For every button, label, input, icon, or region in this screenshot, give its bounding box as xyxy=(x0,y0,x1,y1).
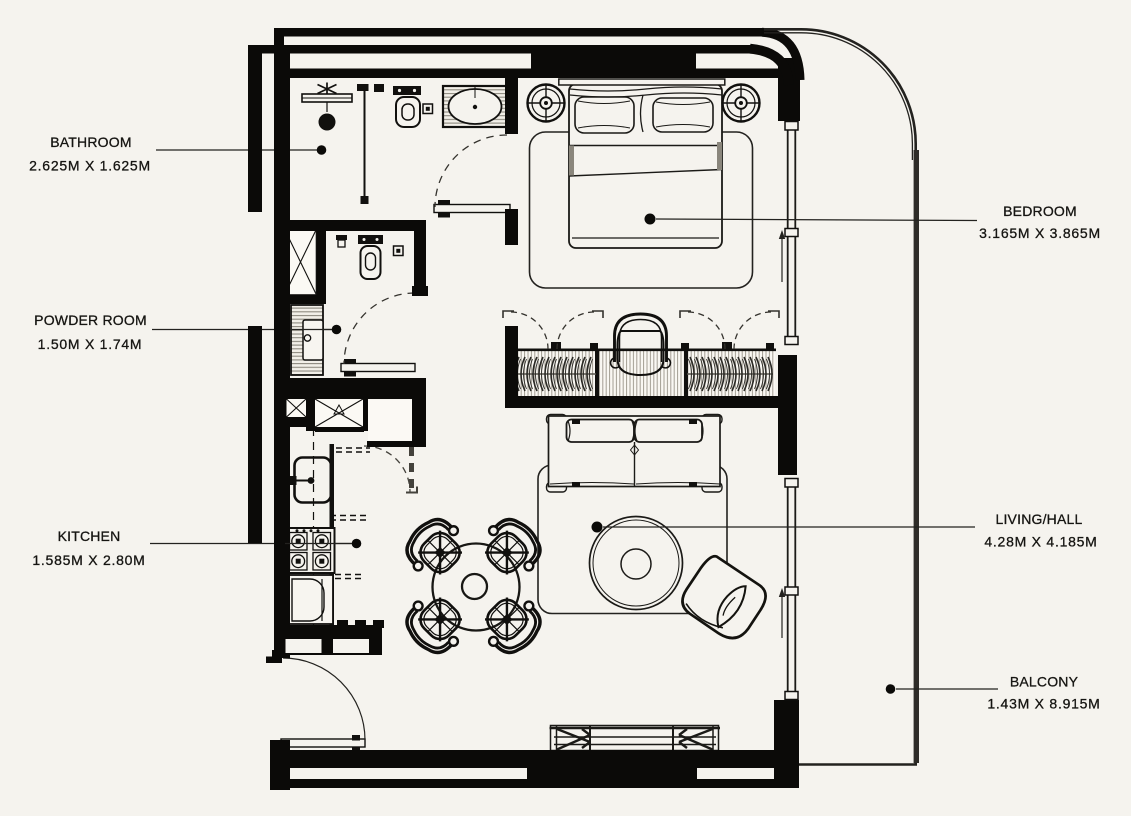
svg-text:1.585M X 2.80M: 1.585M X 2.80M xyxy=(32,552,145,568)
svg-text:3.165M X 3.865M: 3.165M X 3.865M xyxy=(979,225,1101,241)
svg-text:2.625M X 1.625M: 2.625M X 1.625M xyxy=(29,158,151,174)
svg-text:4.28M X 4.185M: 4.28M X 4.185M xyxy=(984,534,1097,550)
svg-text:1.50M X 1.74M: 1.50M X 1.74M xyxy=(38,336,143,352)
svg-text:KITCHEN: KITCHEN xyxy=(58,528,121,544)
svg-text:POWDER ROOM: POWDER ROOM xyxy=(34,312,147,328)
svg-text:BEDROOM: BEDROOM xyxy=(1003,203,1077,219)
svg-text:BATHROOM: BATHROOM xyxy=(50,134,131,150)
svg-text:1.43M X 8.915M: 1.43M X 8.915M xyxy=(987,696,1100,712)
svg-text:LIVING/HALL: LIVING/HALL xyxy=(995,511,1082,527)
svg-text:BALCONY: BALCONY xyxy=(1010,674,1079,690)
